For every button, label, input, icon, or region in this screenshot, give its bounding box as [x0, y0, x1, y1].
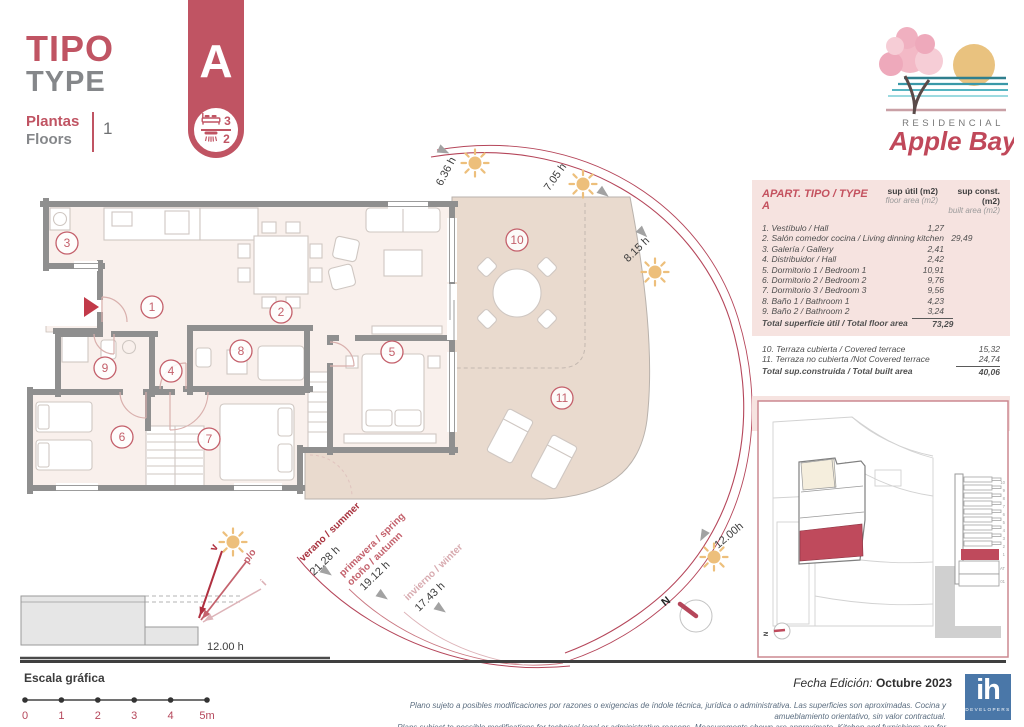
room-marker: 10: [506, 229, 528, 251]
table-row: 4. Distribuidor / Hall2,42: [762, 254, 1000, 264]
svg-text:2: 2: [278, 305, 285, 319]
col-built-area: sup const. (m2) built area (m2): [938, 186, 1000, 216]
bedrooms-count: 3: [224, 114, 231, 128]
arrow-label-summer: v: [208, 542, 222, 553]
room-marker: 2: [270, 301, 292, 323]
horizon-lines: [886, 78, 1008, 110]
col-floor-area: sup útil (m2) floor area (m2): [878, 186, 938, 216]
page-title-en: TYPE: [26, 66, 106, 99]
legal-text: Plano sujeto a posibles modificaciones p…: [386, 700, 946, 727]
svg-text:10: 10: [1000, 480, 1005, 485]
svg-text:4: 4: [168, 364, 175, 378]
floor-plan: 1234567891011 6.36 h7.05 h8.15 h12.00h v…: [0, 140, 760, 670]
sun-time-label: 12.00h: [712, 520, 745, 551]
floors-label-es: Plantas: [26, 113, 79, 131]
table-row: 11. Terraza no cubierta /Not Covered ter…: [762, 354, 1000, 364]
table-row: 10. Terraza cubierta / Covered terrace15…: [762, 344, 1000, 354]
svg-text:01: 01: [1000, 579, 1005, 584]
brochure-page: TIPO TYPE Plantas Floors 1 A 3: [0, 0, 1024, 727]
svg-text:4: 4: [168, 710, 174, 722]
bedrooms-row: 3: [201, 113, 231, 129]
terrace-rows: 10. Terraza cubierta / Covered terrace15…: [762, 344, 1000, 365]
season-label: primavera / springotoño / autumn19.12 h: [337, 511, 407, 593]
sun-icon: 7.05 h: [542, 161, 597, 197]
room-marker: 3: [56, 232, 78, 254]
svg-text:5: 5: [389, 345, 396, 359]
room-marker: 9: [94, 357, 116, 379]
table-row: 8. Baño 1 / Bathroom 14,23: [762, 296, 1000, 306]
svg-text:5m: 5m: [199, 710, 214, 722]
sun-time-label: 7.05 h: [542, 161, 569, 193]
room-marker: 8: [230, 340, 252, 362]
noon-label: 12.00 h: [207, 641, 244, 653]
page-title: TIPO: [26, 28, 114, 70]
area-table-main: APART. TIPO / TYPE A sup útil (m2) floor…: [752, 180, 1010, 336]
section-sketch: v p/o i 12.00 h: [20, 542, 330, 658]
logo-apple-bay: Apple Bay: [888, 126, 1014, 156]
floors-value: 1: [103, 119, 112, 139]
table-title: APART. TIPO / TYPE A: [762, 186, 878, 216]
table-row: 1. Vestíbulo / Hall1,27: [762, 223, 1000, 233]
room-marker: 5: [381, 341, 403, 363]
season-label: invierno / winter17.43 h: [402, 542, 465, 614]
arrow-label-winter: i: [259, 578, 270, 589]
bed-icon: [201, 112, 221, 130]
total-floor-area-row: Total superficie útil / Total floor area…: [762, 318, 1000, 329]
type-letter: A: [188, 34, 244, 88]
compass-north-label: N: [659, 594, 673, 608]
residencial-apple-bay-logo: RESIDENCIAL Apple Bay: [858, 18, 1014, 168]
svg-text:0: 0: [22, 710, 28, 722]
room-marker: 4: [160, 360, 182, 382]
svg-text:AT: AT: [1000, 566, 1005, 571]
table-row: 7. Dormitorio 3 / Bedroom 39,56: [762, 285, 1000, 295]
room-marker: 11: [551, 387, 573, 409]
blossom-tree: [879, 27, 943, 114]
building-footprint: [799, 458, 865, 564]
svg-text:1: 1: [58, 710, 64, 722]
highlighted-floor: [961, 549, 999, 560]
arrow-label-spring-autumn: p/o: [241, 547, 259, 566]
svg-text:7: 7: [206, 432, 213, 446]
table-row: 3. Galería / Gallery2,41: [762, 244, 1000, 254]
area-table-terraces: 10. Terraza cubierta / Covered terrace15…: [752, 336, 1010, 384]
svg-text:10: 10: [510, 233, 524, 247]
table-row: 6. Dormitorio 2 / Bedroom 29,76: [762, 275, 1000, 285]
area-table: APART. TIPO / TYPE A sup útil (m2) floor…: [752, 180, 1010, 431]
svg-text:3: 3: [131, 710, 137, 722]
table-row: 9. Baño 2 / Bathroom 23,24: [762, 306, 1000, 316]
svg-text:9: 9: [102, 361, 109, 375]
sun-logo: [953, 44, 995, 86]
scale-title: Escala gráfica: [24, 671, 105, 685]
site-north-label: N: [764, 632, 770, 636]
ih-developers-logo: ih DEVELOPERS: [965, 674, 1011, 720]
svg-text:6: 6: [119, 430, 126, 444]
sun-icon: 12.00h: [701, 520, 746, 570]
room-marker: 7: [198, 428, 220, 450]
table-row: 2. Salón comedor cocina / Living dinning…: [762, 233, 1000, 243]
total-built-area-row: Total sup.construida / Total built area …: [762, 366, 1000, 377]
svg-text:2: 2: [95, 710, 101, 722]
svg-text:1: 1: [149, 300, 156, 314]
sun-icon: [220, 529, 247, 556]
sun-time-label: 6.36 h: [434, 155, 459, 188]
compass: N: [659, 594, 712, 632]
footer-divider: [20, 660, 1006, 663]
svg-text:3: 3: [64, 236, 71, 250]
svg-text:11: 11: [556, 391, 569, 405]
room-marker: 6: [111, 426, 133, 448]
room-marker: 1: [141, 296, 163, 318]
room-rows: 1. Vestíbulo / Hall1,272. Salón comedor …: [762, 223, 1000, 317]
entrance-recess: [38, 268, 101, 326]
svg-text:8: 8: [238, 344, 245, 358]
edition-date: Fecha Edición: Octubre 2023: [793, 676, 952, 690]
site-plan: 10987654321AT01 N: [757, 400, 1009, 658]
scale-bar: 012345m: [20, 690, 250, 724]
table-row: 5. Dormitorio 1 / Bedroom 110,91: [762, 265, 1000, 275]
